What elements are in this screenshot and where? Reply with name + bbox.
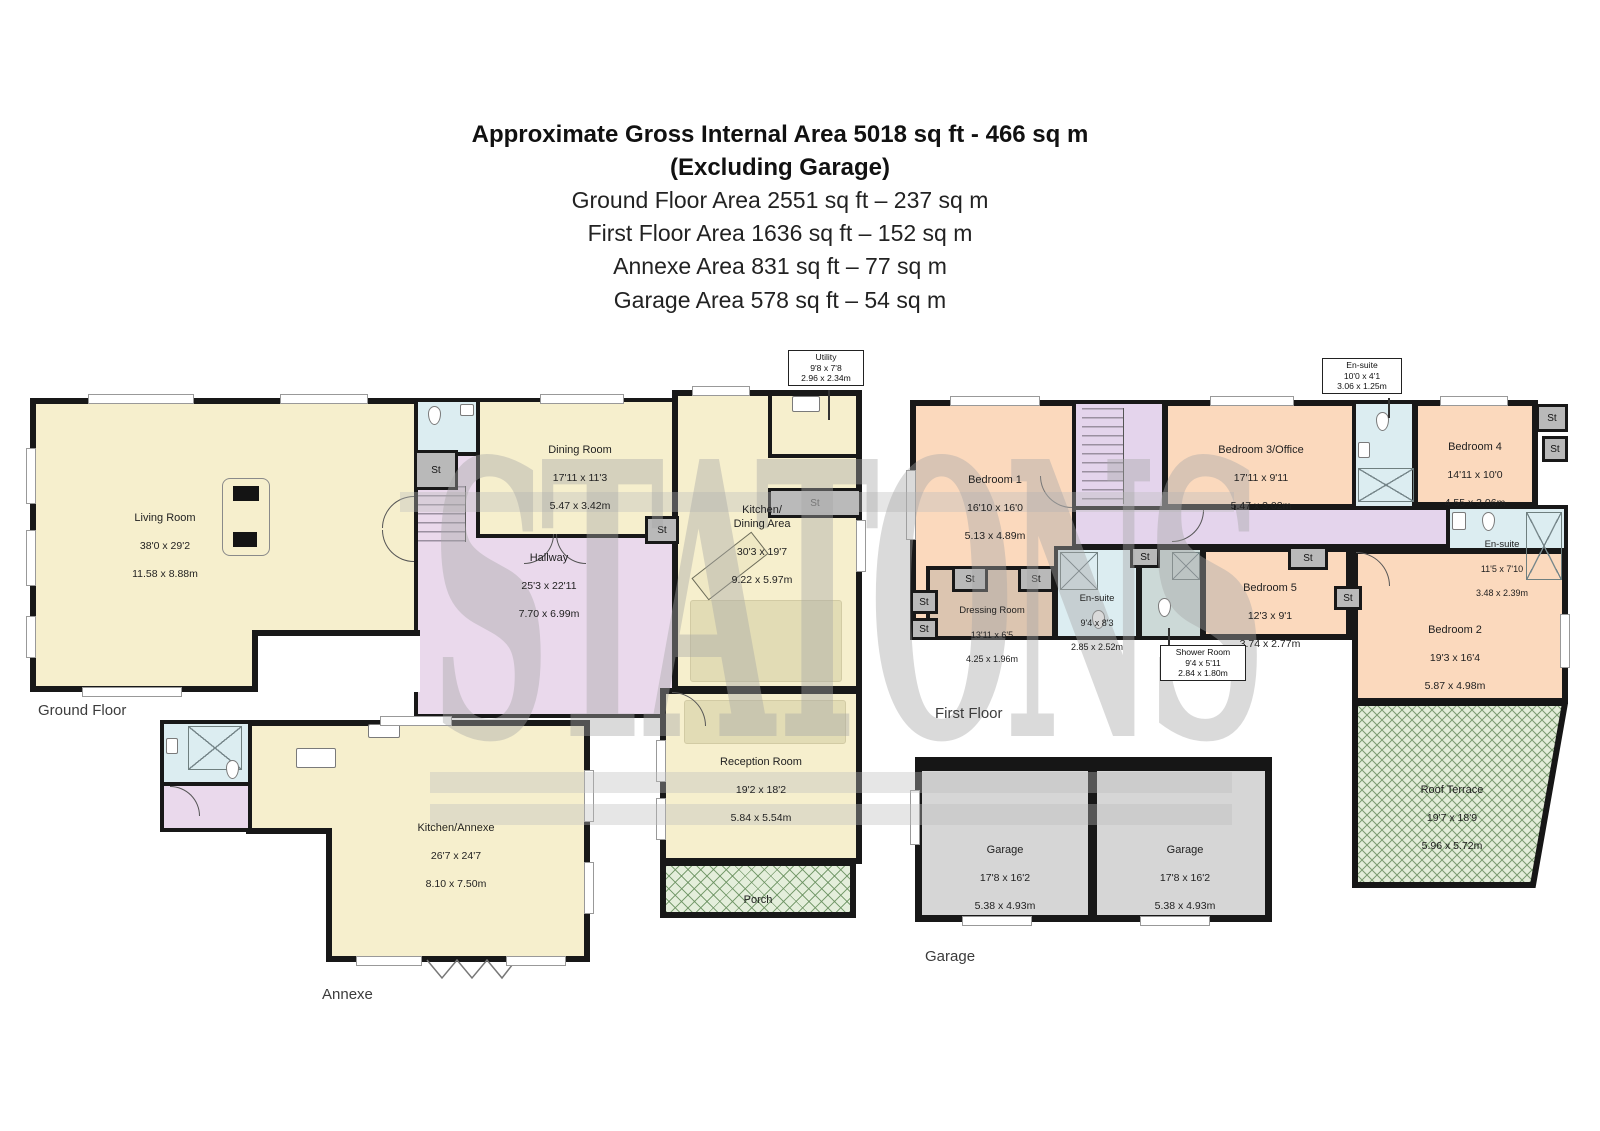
room-dims-ft: 13'11 x 6'5: [930, 630, 1054, 642]
storage-closet: St: [1130, 546, 1160, 568]
reception-furniture-icon: [684, 700, 846, 744]
sink-icon: [166, 738, 178, 754]
garage-left-label: Garage 17'8 x 16'2 5.38 x 4.93m: [915, 828, 1095, 928]
room-name: Living Room: [60, 511, 270, 526]
sink-icon: [460, 404, 474, 416]
room-name: Porch: [660, 893, 856, 908]
room-dims-m: 9.22 x 5.97m: [682, 574, 842, 588]
room-name: Garage: [1095, 843, 1275, 858]
ensuite-top-callout: En-suite 10'0 x 4'1 3.06 x 1.25m: [1322, 358, 1402, 394]
room-dims-m: 4.25 x 1.96m: [930, 654, 1054, 666]
bedroom-1-label: Bedroom 1 16'10 x 16'0 5.13 x 4.89m: [920, 458, 1070, 558]
room-dims-ft: 9'8 x 7'8: [791, 363, 861, 374]
annexe-notch: [246, 828, 332, 962]
room-name: Bedroom 4: [1412, 440, 1538, 455]
garage-front-wall: [915, 757, 1272, 771]
room-dims-m: 5.47 x 3.42m: [480, 500, 680, 514]
room-dims-ft: 38'0 x 29'2: [60, 540, 270, 554]
room-dims-ft: 17'8 x 16'2: [915, 872, 1095, 886]
window: [1440, 396, 1508, 406]
sink-icon: [1358, 442, 1370, 458]
first-floor-caption: First Floor: [935, 705, 1003, 722]
window: [26, 616, 36, 658]
dining-furniture-icon: [690, 600, 842, 682]
ensuite-right-label: En-suite 11'5 x 7'10 3.48 x 2.39m: [1446, 526, 1558, 612]
storage-label: St: [1547, 413, 1556, 424]
storage-closet: St: [1542, 436, 1568, 462]
window: [26, 530, 36, 586]
dining-room-label: Dining Room 17'11 x 11'3 5.47 x 3.42m: [480, 428, 680, 528]
room-dims-m: 5.38 x 4.93m: [1095, 900, 1275, 914]
storage-label: St: [919, 624, 928, 635]
room-dims-ft: 19'3 x 16'4: [1360, 652, 1550, 666]
bay-zigzag: [426, 958, 518, 982]
room-name: Bedroom 5: [1200, 581, 1340, 596]
sink-icon: [368, 724, 400, 738]
room-name: Garage: [915, 843, 1095, 858]
shower-room-callout: Shower Room 9'4 x 5'11 2.84 x 1.80m: [1160, 645, 1246, 681]
room-dims-ft: 19'7 x 18'9: [1382, 812, 1522, 826]
window: [380, 716, 452, 726]
room-name: Dressing Room: [930, 605, 1054, 618]
room-dims-m: 5.84 x 5.54m: [668, 812, 854, 826]
storage-label: St: [431, 465, 440, 476]
living-room-notch: [252, 630, 420, 692]
callout-leader-line: [1388, 398, 1390, 418]
shower-icon: [1358, 468, 1414, 502]
room-dims-m: 3.06 x 1.25m: [1325, 381, 1399, 392]
window: [1210, 396, 1294, 406]
room-dims-m: 5.87 x 4.98m: [1360, 680, 1550, 694]
room-dims-ft: 11'5 x 7'10: [1446, 564, 1558, 576]
garage-right-label: Garage 17'8 x 16'2 5.38 x 4.93m: [1095, 828, 1275, 928]
window: [584, 862, 594, 914]
room-dims-m: 5.96 x 5.72m: [1382, 840, 1522, 854]
floorplan-page: Approximate Gross Internal Area 5018 sq …: [0, 0, 1600, 1131]
room-dims-ft: 30'3 x 19'7: [682, 546, 842, 560]
kitchen-annexe-label: Kitchen/Annexe 26'7 x 24'7 8.10 x 7.50m: [356, 806, 556, 906]
room-name: En-suite: [1446, 539, 1558, 552]
storage-label: St: [1303, 553, 1312, 564]
room-dims-ft: 17'11 x 11'3: [480, 472, 680, 486]
living-room-label: Living Room 38'0 x 29'2 11.58 x 8.88m: [60, 496, 270, 596]
room-name: Utility: [791, 352, 861, 363]
room-dims-m: 5.47 x 3.02m: [1166, 500, 1356, 514]
reception-room-label: Reception Room 19'2 x 18'2 5.84 x 5.54m: [668, 740, 854, 840]
storage-label: St: [1031, 574, 1040, 585]
room-dims-ft: 12'3 x 9'1: [1200, 610, 1340, 624]
room-dims-m: 4.55 x 3.06m: [1412, 497, 1538, 511]
title-line-5: Annexe Area 831 sq ft – 77 sq m: [200, 250, 1360, 283]
window: [506, 956, 566, 966]
callout-leader-line: [828, 390, 830, 420]
title-block: Approximate Gross Internal Area 5018 sq …: [200, 118, 1360, 317]
room-dims-ft: 25'3 x 22'11: [434, 580, 664, 594]
room-name: Kitchen/ Dining Area: [682, 503, 842, 532]
room-dims-m: 5.13 x 4.89m: [920, 530, 1070, 544]
window: [1560, 614, 1570, 668]
porch-label: Porch: [660, 878, 856, 922]
storage-label: St: [919, 597, 928, 608]
storage-closet: St: [414, 450, 458, 490]
title-line-3: Ground Floor Area 2551 sq ft – 237 sq m: [200, 184, 1360, 217]
room-name: Kitchen/Annexe: [356, 821, 556, 836]
room-dims-ft: 14'11 x 10'0: [1412, 469, 1538, 483]
room-dims-m: 3.48 x 2.39m: [1446, 588, 1558, 600]
storage-closet: St: [952, 566, 988, 592]
storage-label: St: [1343, 593, 1352, 604]
room-dims-ft: 19'2 x 18'2: [668, 784, 854, 798]
window: [280, 394, 368, 404]
room-dims-ft: 9'4 x 5'11: [1163, 658, 1243, 669]
room-dims-m: 2.84 x 1.80m: [1163, 668, 1243, 679]
window: [540, 394, 624, 404]
room-dims-ft: 16'10 x 16'0: [920, 502, 1070, 516]
title-line-1: Approximate Gross Internal Area 5018 sq …: [200, 118, 1360, 151]
room-name: Hallway: [434, 551, 664, 566]
window: [82, 687, 182, 697]
ground-floor-caption: Ground Floor: [38, 702, 126, 719]
annexe-caption: Annexe: [322, 986, 373, 1003]
storage-label: St: [1140, 552, 1149, 563]
roof-terrace-label: Roof Terrace 19'7 x 18'9 5.96 x 5.72m: [1382, 768, 1522, 868]
utility-sink-icon: [792, 396, 820, 412]
title-line-6: Garage Area 578 sq ft – 54 sq m: [200, 284, 1360, 317]
window: [950, 396, 1040, 406]
room-dims-m: 8.10 x 7.50m: [356, 878, 556, 892]
callout-leader-line: [1168, 628, 1170, 645]
room-dims-ft: 9'4 x 8'3: [1054, 618, 1140, 630]
room-name: Bedroom 1: [920, 473, 1070, 488]
window: [692, 386, 750, 396]
room-dims-m: 2.85 x 2.52m: [1054, 642, 1140, 654]
room-name: Bedroom 2: [1360, 623, 1550, 638]
room-dims-ft: 17'8 x 16'2: [1095, 872, 1275, 886]
utility-callout: Utility 9'8 x 7'8 2.96 x 2.34m: [788, 350, 864, 386]
room-dims-ft: 17'11 x 9'11: [1166, 472, 1356, 486]
room-name: Bedroom 3/Office: [1166, 443, 1356, 458]
kitchen-dining-label: Kitchen/ Dining Area 30'3 x 19'7 9.22 x …: [682, 488, 842, 603]
dressing-room-label: Dressing Room 13'11 x 6'5 4.25 x 1.96m: [930, 592, 1054, 678]
room-dims-m: 2.96 x 2.34m: [791, 373, 861, 384]
room-name: Reception Room: [668, 755, 854, 770]
bedroom-4-label: Bedroom 4 14'11 x 10'0 4.55 x 3.06m: [1412, 425, 1538, 525]
room-name: Shower Room: [1163, 647, 1243, 658]
stove-icon: [296, 748, 336, 768]
title-line-2: (Excluding Garage): [200, 151, 1360, 184]
room-name: En-suite: [1325, 360, 1399, 371]
title-line-4: First Floor Area 1636 sq ft – 152 sq m: [200, 217, 1360, 250]
room-name: En-suite: [1054, 593, 1140, 606]
bedroom-2-label: Bedroom 2 19'3 x 16'4 5.87 x 4.98m: [1360, 608, 1550, 708]
room-dims-ft: 26'7 x 24'7: [356, 850, 556, 864]
storage-label: St: [965, 574, 974, 585]
storage-closet: St: [1536, 404, 1568, 432]
storage-closet: St: [1018, 566, 1054, 592]
garage-caption: Garage: [925, 948, 975, 965]
room-dims-ft: 10'0 x 4'1: [1325, 371, 1399, 382]
room-name: Roof Terrace: [1382, 783, 1522, 798]
storage-label: St: [1550, 444, 1559, 455]
window: [26, 448, 36, 504]
window: [88, 394, 194, 404]
room-name: Dining Room: [480, 443, 680, 458]
shower-icon: [1172, 552, 1200, 580]
room-dims-m: 11.58 x 8.88m: [60, 568, 270, 582]
room-dims-m: 7.70 x 6.99m: [434, 608, 664, 622]
hallway-label: Hallway 25'3 x 22'11 7.70 x 6.99m: [434, 536, 664, 636]
window: [356, 956, 422, 966]
ensuite-mid-label: En-suite 9'4 x 8'3 2.85 x 2.52m: [1054, 580, 1140, 666]
room-dims-m: 5.38 x 4.93m: [915, 900, 1095, 914]
window: [856, 520, 866, 572]
bedroom-3-label: Bedroom 3/Office 17'11 x 9'11 5.47 x 3.0…: [1166, 428, 1356, 528]
staircase-first: [1082, 408, 1124, 504]
